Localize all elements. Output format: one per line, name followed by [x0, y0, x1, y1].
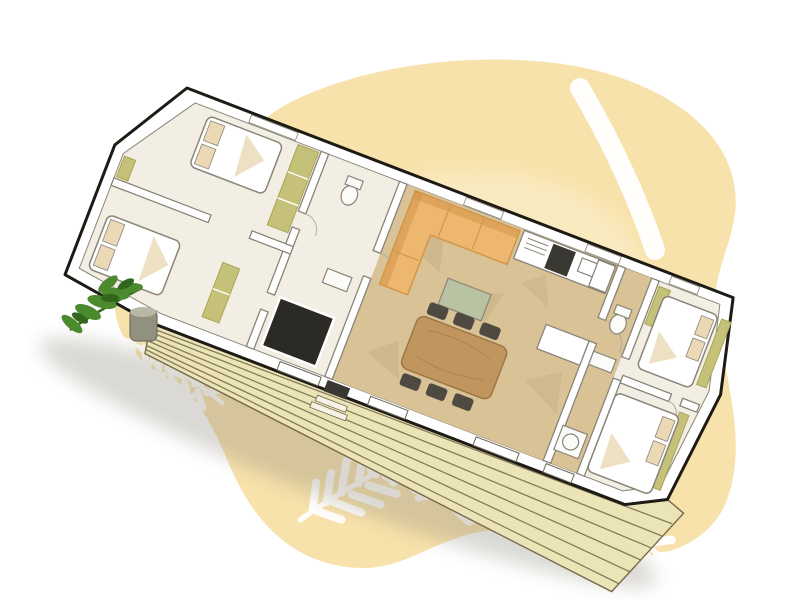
- illustration-canvas: [0, 0, 800, 600]
- floorplan-illustration-svg: [0, 0, 800, 600]
- plant-pot-rim: [130, 307, 156, 317]
